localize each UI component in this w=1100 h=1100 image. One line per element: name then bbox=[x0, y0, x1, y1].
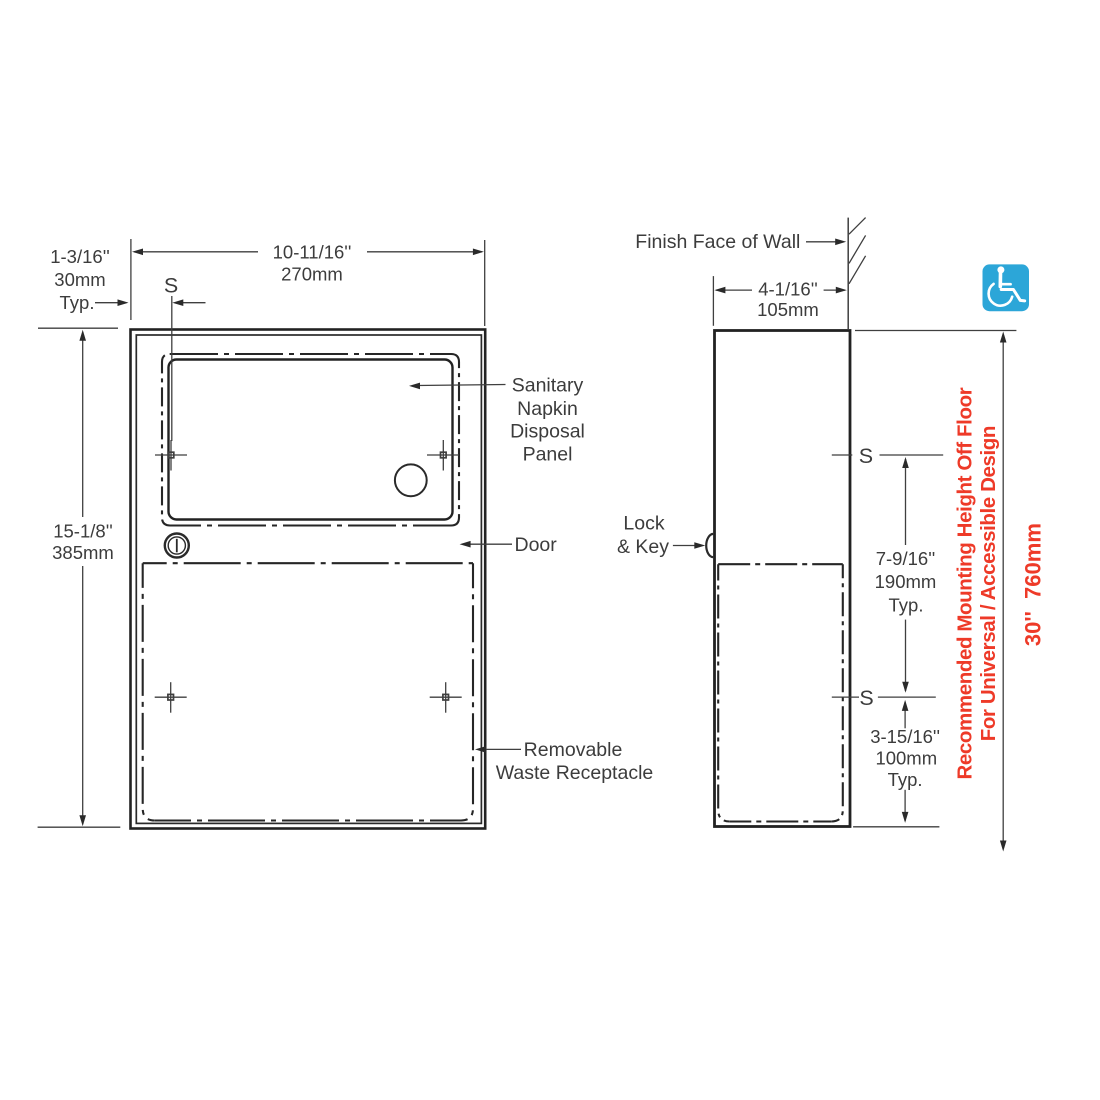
svg-text:Finish Face of Wall: Finish Face of Wall bbox=[635, 231, 800, 253]
svg-text:3-15/16'': 3-15/16'' bbox=[870, 726, 940, 747]
svg-text:Door: Door bbox=[515, 534, 558, 556]
svg-text:Typ.: Typ. bbox=[60, 292, 95, 313]
svg-text:Waste Receptacle: Waste Receptacle bbox=[496, 762, 654, 784]
svg-text:4-1/16'': 4-1/16'' bbox=[758, 279, 818, 300]
svg-text:Recommended Mounting Height Of: Recommended Mounting Height Off Floor bbox=[953, 387, 976, 779]
svg-text:Removable: Removable bbox=[524, 739, 623, 761]
svg-text:Typ.: Typ. bbox=[888, 769, 923, 790]
svg-text:Panel: Panel bbox=[523, 444, 573, 466]
svg-text:Sanitary: Sanitary bbox=[512, 375, 584, 397]
svg-text:105mm: 105mm bbox=[757, 299, 819, 320]
svg-text:Disposal: Disposal bbox=[510, 421, 585, 443]
svg-text:Typ.: Typ. bbox=[889, 595, 924, 616]
svg-text:190mm: 190mm bbox=[875, 571, 937, 592]
svg-text:& Key: & Key bbox=[617, 536, 669, 558]
svg-text:1-3/16'': 1-3/16'' bbox=[50, 246, 110, 267]
svg-text:30'' 760mm: 30'' 760mm bbox=[1020, 523, 1045, 646]
svg-text:270mm: 270mm bbox=[281, 264, 343, 285]
svg-text:30mm: 30mm bbox=[54, 269, 105, 290]
svg-text:100mm: 100mm bbox=[875, 748, 937, 769]
svg-text:Napkin: Napkin bbox=[517, 398, 578, 420]
svg-text:S: S bbox=[859, 444, 873, 468]
svg-text:For Universal / Accessible Des: For Universal / Accessible Design bbox=[977, 426, 1000, 741]
svg-text:10-11/16'': 10-11/16'' bbox=[273, 242, 352, 263]
svg-text:S: S bbox=[859, 686, 873, 710]
svg-text:385mm: 385mm bbox=[52, 542, 114, 563]
svg-text:15-1/8'': 15-1/8'' bbox=[53, 521, 113, 542]
svg-text:7-9/16'': 7-9/16'' bbox=[876, 548, 936, 569]
svg-text:S: S bbox=[164, 274, 178, 298]
svg-text:Lock: Lock bbox=[623, 513, 664, 535]
